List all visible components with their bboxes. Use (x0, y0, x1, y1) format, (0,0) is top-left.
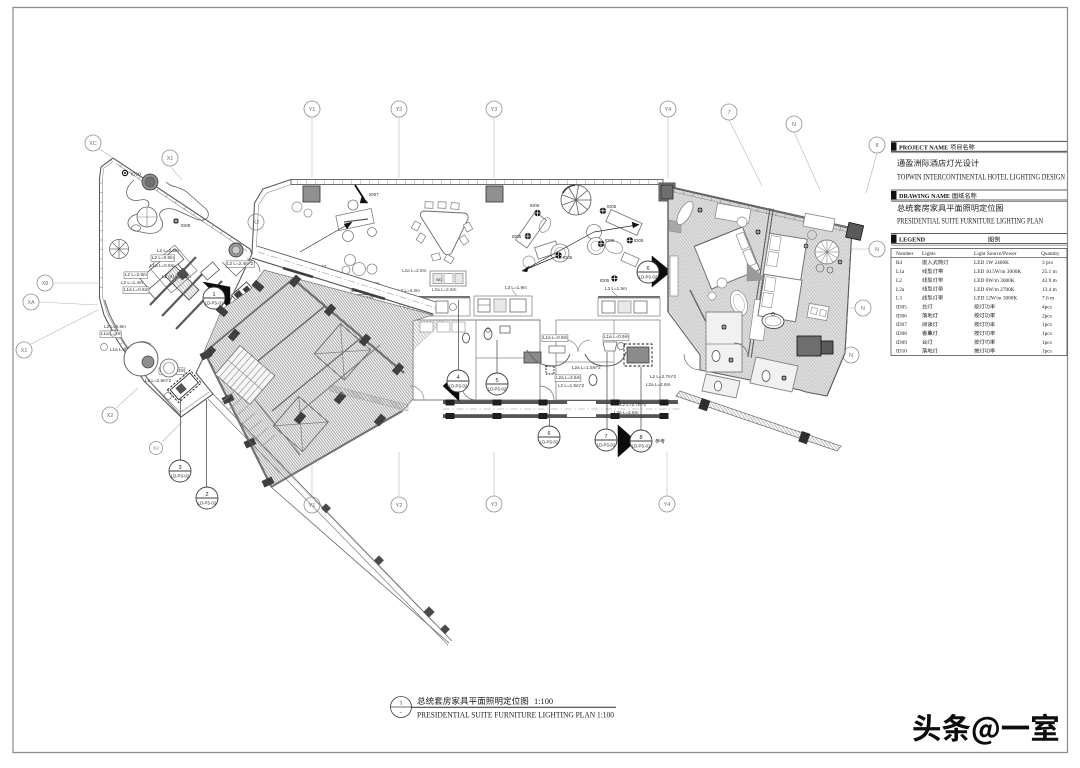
svg-text:5: 5 (495, 378, 498, 384)
svg-text:1pcs: 1pcs (1042, 340, 1052, 346)
svg-text:L2 L=2.6m: L2 L=2.6m (157, 248, 179, 253)
svg-text:L2 L=0.6m: L2 L=0.6m (104, 324, 126, 329)
svg-text:Y2: Y2 (396, 503, 403, 509)
svg-text:L2a L=2.6m: L2a L=2.6m (556, 375, 581, 380)
svg-text:6: 6 (646, 266, 649, 272)
svg-text:WD: WD (436, 278, 442, 282)
svg-text:1pcs: 1pcs (1042, 322, 1052, 328)
svg-text:R4: R4 (896, 260, 903, 266)
svg-text:X1: X1 (21, 348, 28, 354)
svg-text:L2 L=2.7m*2: L2 L=2.7m*2 (620, 402, 647, 407)
svg-text:Y4: Y4 (665, 107, 672, 113)
svg-text:Y3: Y3 (491, 502, 498, 508)
svg-text:L2 L=2.6m*2: L2 L=2.6m*2 (145, 378, 172, 383)
svg-text:L3: L3 (896, 296, 902, 302)
svg-text:LD-PS-02: LD-PS-02 (449, 384, 468, 389)
svg-text:LD-PS-02: LD-PS-02 (597, 443, 616, 448)
svg-text:L3 L=1.5m: L3 L=1.5m (605, 286, 627, 291)
svg-text:L2a L=2.6m: L2a L=2.6m (614, 410, 639, 415)
svg-text:ID10: ID10 (131, 172, 141, 177)
svg-text:Lights: Lights (922, 251, 936, 257)
svg-text:LED 12W/m 3000K: LED 12W/m 3000K (974, 296, 1017, 302)
svg-text:PROJECT NAME: PROJECT NAME (899, 144, 948, 151)
svg-text:1:100: 1:100 (534, 697, 553, 706)
svg-text:ID07: ID07 (896, 322, 907, 328)
svg-text:L2a L=2.9m: L2a L=2.9m (402, 268, 427, 273)
svg-text:ID10: ID10 (896, 349, 907, 355)
svg-text:XA: XA (27, 300, 35, 306)
svg-text:25.1 m: 25.1 m (1042, 269, 1058, 275)
svg-text:L2 L=0.8m: L2 L=0.8m (152, 255, 174, 260)
svg-text:3 pcs: 3 pcs (1042, 260, 1053, 266)
svg-text:L2a: L2a (896, 287, 905, 293)
svg-text:ID05: ID05 (896, 304, 907, 310)
svg-text:Y4: Y4 (664, 502, 671, 508)
svg-text:2pcs: 2pcs (1042, 313, 1052, 319)
svg-text:ID09: ID09 (181, 223, 191, 228)
svg-text:L2 L=2.4m*2: L2 L=2.4m*2 (227, 261, 254, 266)
svg-text:XC: XC (89, 141, 97, 147)
svg-text:ID06: ID06 (896, 313, 907, 319)
svg-text:1pcs: 1pcs (1042, 349, 1052, 355)
svg-text:N: N (849, 353, 853, 359)
svg-text:6: 6 (547, 431, 550, 437)
svg-text:L2a L=2.6m: L2a L=2.6m (646, 382, 671, 387)
svg-text:LEGEND: LEGEND (899, 237, 926, 244)
svg-text:L2 L=1.4m: L2 L=1.4m (121, 280, 143, 285)
svg-text:L1a L=0.6m: L1a L=0.6m (124, 287, 149, 292)
svg-text:LED 6W/m 3000K: LED 6W/m 3000K (974, 278, 1015, 284)
svg-text:LD-PS-02: LD-PS-02 (639, 275, 658, 280)
svg-text:Light Source/Power: Light Source/Power (974, 251, 1017, 257)
svg-text:X2: X2 (153, 446, 159, 452)
svg-text:L1a L=0.9m: L1a L=0.9m (604, 334, 629, 339)
svg-text:LD-PS-02: LD-PS-02 (171, 474, 190, 479)
svg-text:X1: X1 (167, 156, 174, 162)
svg-text:3: 3 (178, 465, 181, 471)
svg-text:LED 1W 2400K: LED 1W 2400K (974, 260, 1009, 266)
svg-text:LD-PS-02: LD-PS-02 (198, 501, 217, 506)
svg-text:L2a L=2.6m: L2a L=2.6m (432, 287, 457, 292)
svg-text:ID05: ID05 (600, 278, 610, 283)
svg-text:8: 8 (639, 435, 642, 441)
svg-text:7: 7 (727, 110, 730, 116)
svg-text:N: N (792, 122, 796, 128)
svg-text:ID05: ID05 (607, 204, 617, 209)
svg-text:Quantity: Quantity (1041, 251, 1060, 257)
svg-text:1: 1 (400, 701, 403, 707)
svg-text:LD-PS-01: LD-PS-01 (632, 444, 651, 449)
svg-text:TOPWIN INTERCONTINENTAL HOTE: TOPWIN INTERCONTINENTAL HOTEL LIGHTING D… (897, 173, 1065, 182)
svg-text:ID09: ID09 (896, 340, 907, 346)
svg-text:L2 (4) L=1.5m: L2 (4) L=1.5m (162, 274, 191, 279)
svg-text:N: N (861, 306, 865, 312)
svg-text:ID05: ID05 (634, 238, 644, 243)
svg-text:L2a L=1.5m*2: L2a L=1.5m*2 (572, 365, 601, 370)
svg-text:L2: L2 (896, 278, 902, 284)
svg-text:Number: Number (896, 251, 914, 257)
svg-text:L1a L=2m: L1a L=2m (101, 331, 122, 336)
svg-text:L2 L=2.6m: L2 L=2.6m (125, 272, 147, 277)
svg-text:4: 4 (456, 375, 459, 381)
svg-text:7.6 m: 7.6 m (1042, 296, 1055, 302)
svg-text:13.4 m: 13.4 m (1042, 287, 1058, 293)
svg-text:PRESIDENTIAL SUITE FURNITURE L: PRESIDENTIAL SUITE FURNITURE LIGHTING PL… (417, 711, 614, 720)
svg-text:Y3: Y3 (491, 107, 498, 113)
svg-text:-: - (400, 711, 402, 717)
svg-text:ID07: ID07 (369, 192, 379, 197)
svg-text:LD-PS-02: LD-PS-02 (540, 440, 559, 445)
svg-text:42.9 m: 42.9 m (1042, 278, 1058, 284)
svg-text:1: 1 (212, 292, 215, 298)
svg-text:ID05: ID05 (530, 203, 540, 208)
svg-text:2: 2 (205, 492, 208, 498)
svg-text:L1a: L1a (896, 269, 905, 275)
svg-text:Y2: Y2 (396, 107, 403, 113)
svg-text:7: 7 (604, 434, 607, 440)
svg-text:DRAWING NAME: DRAWING NAME (899, 193, 950, 200)
svg-text:L3 L=1.9m: L3 L=1.9m (505, 285, 527, 290)
svg-text:ID06: ID06 (605, 238, 615, 243)
svg-text:N: N (875, 247, 879, 253)
svg-text:LD-PS-02: LD-PS-02 (488, 387, 507, 392)
svg-text:LD-PS-01: LD-PS-01 (205, 301, 224, 306)
svg-text:8: 8 (875, 143, 878, 149)
svg-text:X8: X8 (42, 281, 49, 287)
svg-text:LED 10.5W/m 3000K: LED 10.5W/m 3000K (974, 269, 1021, 275)
svg-text:ID08: ID08 (896, 331, 907, 337)
svg-text:PRESIDENTIAL SUITE FURNITURE L: PRESIDENTIAL SUITE FURNITURE LIGHTING PL… (897, 217, 1043, 226)
svg-text:ID05: ID05 (512, 234, 522, 239)
svg-text:L2 L=1.5m*2: L2 L=1.5m*2 (558, 383, 585, 388)
svg-text:L1a L=0.9m: L1a L=0.9m (543, 335, 568, 340)
svg-text:X2: X2 (107, 413, 114, 419)
svg-text:1pcs: 1pcs (1042, 331, 1052, 337)
svg-text:Y1: Y1 (309, 107, 316, 113)
svg-text:L2 L=2.7m*2: L2 L=2.7m*2 (650, 374, 677, 379)
svg-text:ID06: ID06 (563, 255, 573, 260)
svg-text:4pcs: 4pcs (1042, 304, 1052, 310)
svg-text:LED 6W/m 2700K: LED 6W/m 2700K (974, 287, 1015, 293)
svg-text:L1a L=0.6m: L1a L=0.6m (150, 263, 175, 268)
